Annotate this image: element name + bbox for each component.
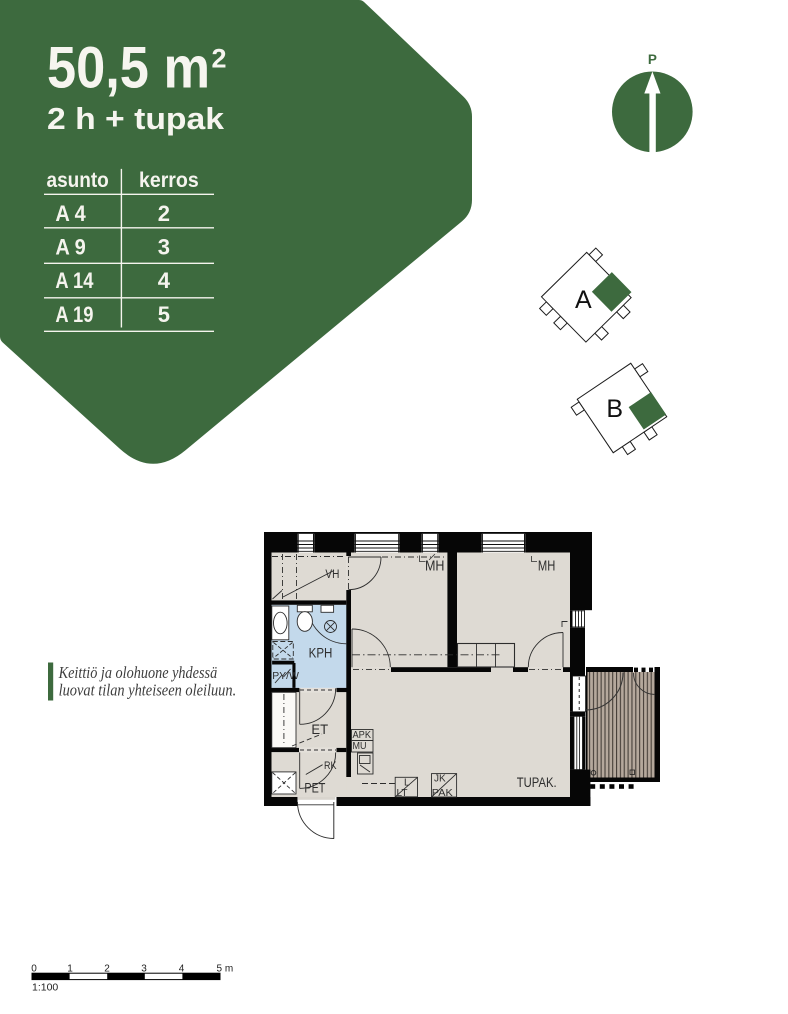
svg-text:A 9: A 9 — [55, 235, 85, 260]
svg-text:50,5 m: 50,5 m — [47, 36, 210, 101]
svg-text:MH: MH — [425, 558, 445, 575]
svg-text:LT: LT — [397, 788, 408, 799]
svg-text:JK: JK — [434, 774, 446, 785]
svg-text:RK: RK — [324, 760, 337, 772]
svg-text:1: 1 — [67, 964, 73, 975]
svg-text:A 14: A 14 — [55, 268, 94, 293]
svg-text:PET: PET — [304, 781, 325, 796]
svg-text:3: 3 — [141, 964, 147, 975]
svg-text:A: A — [575, 286, 592, 314]
svg-text:KPH: KPH — [309, 645, 333, 660]
svg-text:MU: MU — [353, 741, 367, 752]
svg-text:2: 2 — [104, 964, 110, 975]
svg-text:5: 5 — [158, 302, 170, 327]
svg-text:MH: MH — [538, 558, 555, 575]
svg-text:2: 2 — [158, 201, 170, 226]
svg-text:ET: ET — [311, 722, 328, 737]
svg-text:PY/W: PY/W — [272, 670, 299, 682]
svg-text:B: B — [606, 395, 623, 423]
svg-text:4: 4 — [179, 964, 185, 975]
svg-text:1:100: 1:100 — [32, 982, 58, 994]
svg-text:TUPAK.: TUPAK. — [517, 775, 557, 790]
svg-text:APK: APK — [353, 730, 372, 741]
svg-text:2: 2 — [212, 44, 227, 74]
svg-text:asunto: asunto — [47, 168, 109, 192]
svg-text:L: L — [404, 778, 410, 789]
svg-text:Keittiö ja olohuone yhdessä: Keittiö ja olohuone yhdessä — [58, 663, 217, 682]
svg-text:kerros: kerros — [139, 168, 199, 192]
svg-text:3: 3 — [158, 235, 170, 260]
svg-text:A 19: A 19 — [55, 302, 93, 327]
svg-text:VH: VH — [325, 569, 339, 581]
svg-text:0: 0 — [31, 964, 37, 975]
svg-text:luovat tilan yhteiseen oleiluu: luovat tilan yhteiseen oleiluun. — [59, 681, 237, 700]
svg-text:A 4: A 4 — [55, 201, 86, 226]
svg-text:5 m: 5 m — [217, 964, 234, 975]
svg-text:P: P — [648, 52, 657, 67]
svg-text:PAK: PAK — [432, 788, 453, 799]
svg-text:2 h + tupak: 2 h + tupak — [47, 101, 225, 136]
svg-text:4: 4 — [158, 268, 171, 293]
